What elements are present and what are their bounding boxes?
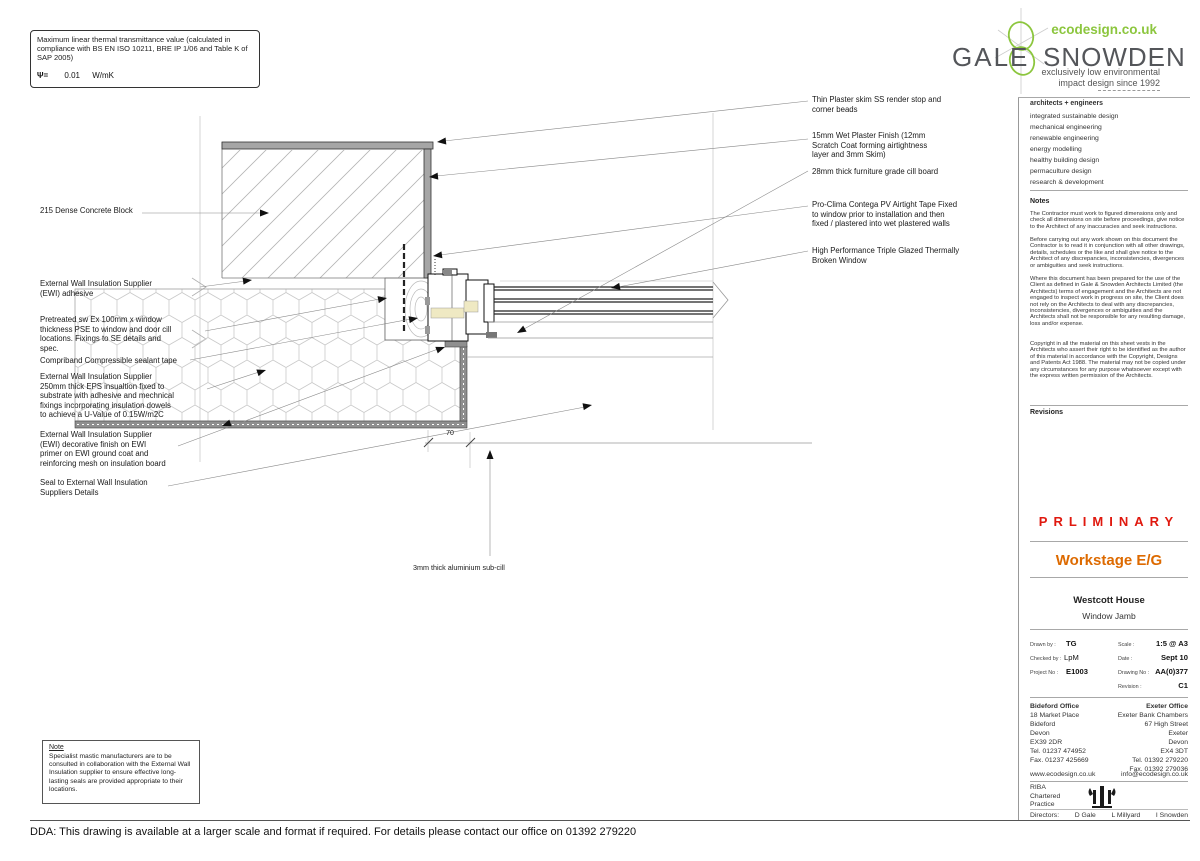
bideford-office-name: Bideford Office bbox=[1030, 702, 1079, 711]
dim-tick-icon bbox=[424, 438, 433, 447]
dda-statement: DDA: This drawing is available at a larg… bbox=[30, 826, 636, 838]
workstage-label: Workstage E/G bbox=[1030, 552, 1188, 569]
logo-url: ecodesign.co.uk bbox=[1000, 22, 1157, 37]
separator bbox=[1030, 541, 1188, 542]
thermal-box-text: Maximum linear thermal transmittance val… bbox=[37, 35, 251, 62]
service-item: healthy building design bbox=[1030, 156, 1188, 165]
annotation-label: Compriband Compressible sealant tape bbox=[40, 356, 177, 366]
triple-glazing bbox=[494, 281, 728, 318]
service-item: research & development bbox=[1030, 178, 1188, 187]
logo-tagline-1: exclusively low environmental bbox=[1000, 67, 1160, 77]
scale-label: Scale : bbox=[1118, 642, 1134, 648]
psi-value: 0.01 bbox=[64, 71, 80, 80]
annotation-label: 28mm thick furniture grade cill board bbox=[812, 167, 938, 177]
cill-board-lines bbox=[467, 322, 713, 357]
separator bbox=[1030, 809, 1188, 810]
gasket bbox=[444, 270, 452, 274]
psi-symbol: Ψ= bbox=[37, 71, 48, 80]
notes-paragraph: Copyright in all the material on this sh… bbox=[1030, 341, 1188, 379]
logo-tagline-2: impact design since 1992 bbox=[1000, 78, 1160, 88]
concrete-block-wall bbox=[222, 142, 433, 278]
revision-value: C1 bbox=[1140, 681, 1188, 690]
service-item: energy modelling bbox=[1030, 145, 1188, 154]
annotation-label: 215 Dense Concrete Block bbox=[40, 206, 133, 216]
checked-by-label: Checked by : bbox=[1030, 656, 1061, 662]
gasket bbox=[486, 332, 497, 338]
service-item: renewable engineering bbox=[1030, 134, 1188, 143]
annotation-label: High Performance Triple Glazed Thermally… bbox=[812, 246, 959, 265]
detail-drawing-svg bbox=[0, 0, 1200, 861]
scale-value: 1:5 @ A3 bbox=[1140, 639, 1188, 648]
notes-paragraph: Where this document has been prepared fo… bbox=[1030, 276, 1188, 327]
preliminary-stamp: PRLIMINARY bbox=[1030, 514, 1188, 529]
psi-unit: W/mK bbox=[92, 71, 114, 80]
plaster-finish-top bbox=[222, 142, 433, 149]
service-item: permaculture design bbox=[1030, 167, 1188, 176]
separator bbox=[1030, 697, 1188, 698]
annotation-label: External Wall Insulation Supplier (EWI) … bbox=[40, 430, 166, 468]
director-name: I Snowden bbox=[1156, 812, 1188, 819]
checked-by-value: LpM bbox=[1064, 653, 1079, 662]
dimension-text: 70 bbox=[438, 429, 462, 439]
website-text[interactable]: www.ecodesign.co.uk bbox=[1030, 770, 1095, 779]
riba-crest-icon bbox=[1089, 786, 1116, 808]
project-no-label: Project No : bbox=[1030, 670, 1058, 676]
note-box-title: Note bbox=[49, 744, 64, 751]
note-box-text: Specialist mastic manufacturers are to b… bbox=[49, 753, 193, 794]
riba-text: RIBA Chartered Practice bbox=[1030, 784, 1060, 810]
notes-header: Notes bbox=[1030, 198, 1188, 205]
date-value: Sept 10 bbox=[1140, 653, 1188, 662]
drawn-by-label: Drawn by : bbox=[1030, 642, 1056, 648]
annotation-label: Pro-Clima Contega PV Airtight Tape Fixed… bbox=[812, 200, 957, 229]
directors-row: Directors: D Gale L Millyard I Snowden bbox=[1030, 812, 1188, 819]
mastic-note-box: Note Specialist mastic manufacturers are… bbox=[42, 740, 200, 804]
exeter-office-name: Exeter Office bbox=[1090, 702, 1188, 711]
exeter-office-address: Exeter Bank Chambers 67 High Street Exet… bbox=[1090, 711, 1188, 774]
bideford-office-address: 18 Market Place Bideford Devon EX39 2DR … bbox=[1030, 711, 1089, 765]
gasket bbox=[425, 297, 430, 305]
annotation-label: Thin Plaster skim SS render stop and cor… bbox=[812, 95, 941, 114]
annotation-label: Pretreated sw Ex 100mm x window thicknes… bbox=[40, 315, 171, 353]
annotation-label: 15mm Wet Plaster Finish (12mm Scratch Co… bbox=[812, 131, 927, 160]
glazing-break-icon bbox=[713, 282, 728, 318]
notes-paragraph: Before carrying out any work shown on th… bbox=[1030, 237, 1188, 269]
plaster-finish-reveal bbox=[424, 149, 431, 278]
dimension-70 bbox=[424, 430, 812, 468]
director-name: L Millyard bbox=[1111, 812, 1140, 819]
dim-tick-icon bbox=[466, 438, 475, 447]
project-name: Westcott House bbox=[1030, 595, 1188, 606]
sheet-bottom-border bbox=[30, 820, 1190, 821]
annotation-label: Seal to External Wall Insulation Supplie… bbox=[40, 478, 148, 497]
sidebar-divider bbox=[1018, 97, 1019, 820]
services-header: architects + engineers bbox=[1030, 100, 1188, 107]
annotation-label: External Wall Insulation Supplier (EWI) … bbox=[40, 279, 152, 298]
service-item: mechanical engineering bbox=[1030, 123, 1188, 132]
separator bbox=[1030, 781, 1188, 782]
project-no-value: E1003 bbox=[1066, 667, 1088, 676]
window-frame bbox=[425, 269, 497, 341]
separator bbox=[1030, 629, 1188, 630]
drawing-no-value: AA(0)377 bbox=[1140, 667, 1188, 676]
drawing-sheet: { "thermal_box": { "text": "Maximum line… bbox=[0, 0, 1200, 861]
separator bbox=[1030, 577, 1188, 578]
revision-label: Revision : bbox=[1118, 684, 1142, 690]
date-label: Date : bbox=[1118, 656, 1132, 662]
annotation-label: External Wall Insulation Supplier 250mm … bbox=[40, 372, 174, 420]
service-item: integrated sustainable design bbox=[1030, 112, 1188, 121]
director-name: D Gale bbox=[1075, 812, 1096, 819]
subcill-label: 3mm thick aluminium sub-cill bbox=[413, 563, 505, 573]
revisions-header: Revisions bbox=[1030, 409, 1188, 416]
gasket bbox=[425, 326, 430, 334]
thermal-value-box: Maximum linear thermal transmittance val… bbox=[30, 30, 260, 88]
drawing-title: Window Jamb bbox=[1030, 611, 1188, 621]
separator bbox=[1018, 97, 1190, 98]
separator bbox=[1030, 405, 1188, 406]
timber-cream-bar bbox=[431, 308, 464, 318]
directors-label: Directors: bbox=[1030, 812, 1059, 819]
email-text[interactable]: info@ecodesign.co.uk bbox=[1090, 770, 1188, 779]
notes-paragraph: The Contractor must work to figured dime… bbox=[1030, 211, 1188, 230]
drawn-by-value: TG bbox=[1066, 639, 1077, 648]
logo-underline bbox=[1098, 90, 1160, 91]
separator bbox=[1030, 190, 1188, 191]
timber-cream-bar bbox=[464, 301, 478, 312]
